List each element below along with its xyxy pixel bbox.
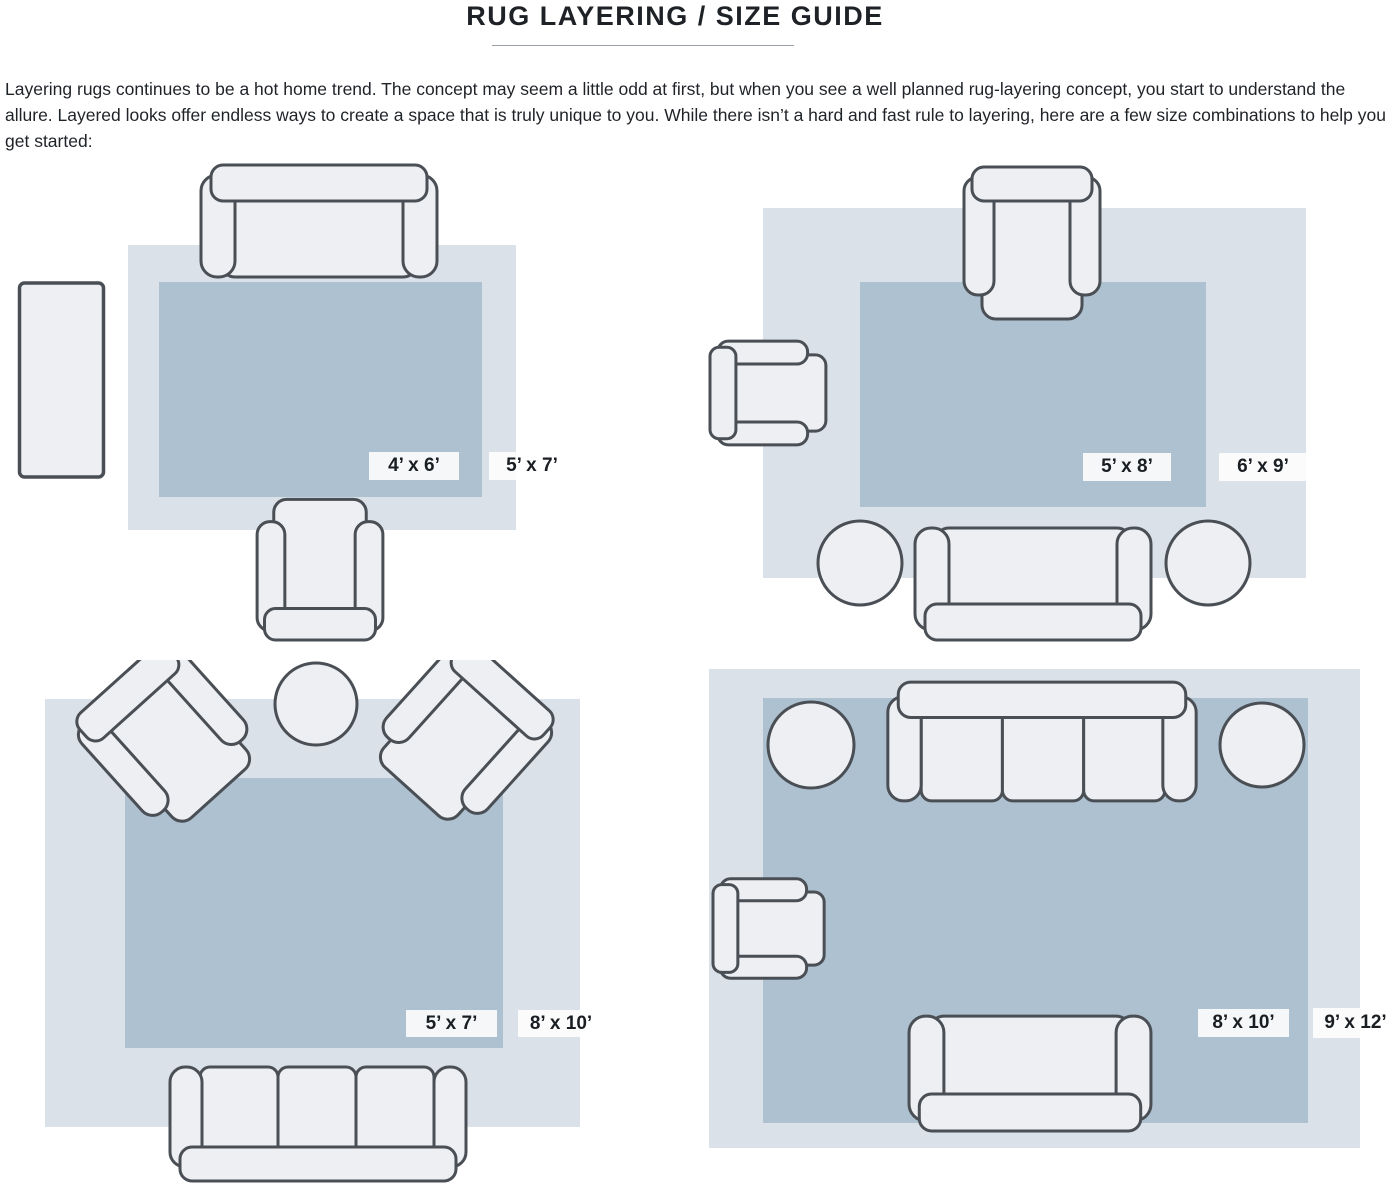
rug-size-label: 4’ x 6’: [369, 452, 459, 480]
rug-size-label: 6’ x 9’: [1219, 453, 1307, 481]
loveseat-sofa: [909, 1016, 1151, 1131]
rug-size-label: 9’ x 12’: [1313, 1008, 1397, 1038]
sofa: [915, 528, 1151, 640]
sofa: [201, 165, 437, 277]
round-pouf: [768, 702, 854, 788]
rug-size-label: 5’ x 7’: [489, 452, 575, 480]
rug-size-label: 8’ x 10’: [518, 1010, 604, 1037]
title-underline: [492, 45, 794, 46]
three-seat-sofa: [888, 682, 1196, 801]
rug-size-label: 8’ x 10’: [1198, 1009, 1289, 1037]
console-bench: [20, 283, 104, 477]
three-seat-sofa: [170, 1067, 466, 1181]
round-pouf: [818, 521, 902, 605]
page-title: RUG LAYERING / SIZE GUIDE: [0, 1, 1350, 32]
rug-size-label: 5’ x 8’: [1083, 453, 1171, 481]
armchair: [710, 341, 826, 445]
layout-3-floorplan: [0, 660, 660, 1183]
round-pouf: [1166, 521, 1250, 605]
round-pouf: [1220, 703, 1304, 787]
layout-2-floorplan: [690, 150, 1397, 660]
layout-1-floorplan: [0, 150, 660, 660]
armchair: [257, 499, 383, 640]
intro-paragraph: Layering rugs continues to be a hot home…: [5, 76, 1390, 154]
armchair: [713, 879, 824, 978]
rug-size-diagram: 4’ x 6’ 5’ x 7’ 5’ x 8’ 6’ x 9’ 5’ x 7’ …: [0, 150, 1397, 1183]
layout-4-floorplan: [690, 650, 1397, 1183]
round-table: [275, 663, 357, 745]
rug-size-label: 5’ x 7’: [406, 1010, 497, 1037]
armchair: [964, 167, 1100, 319]
